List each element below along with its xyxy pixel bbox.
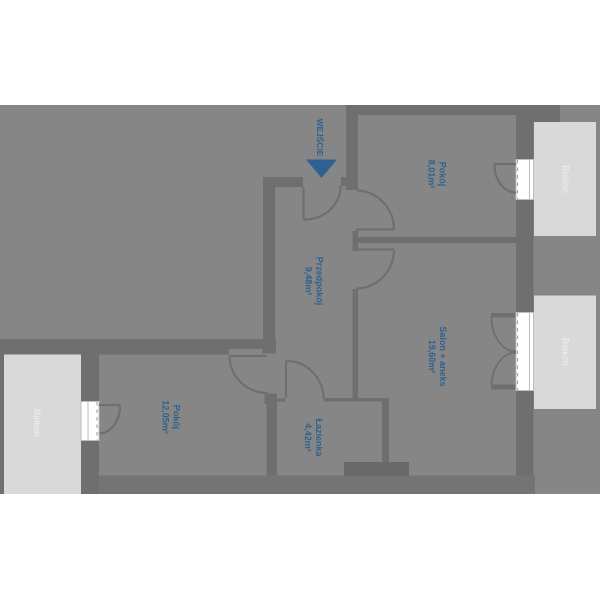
svg-text:Balkon: Balkon (561, 338, 571, 366)
svg-text:12,05m²: 12,05m² (161, 400, 171, 434)
svg-text:Pokój: Pokój (438, 162, 448, 187)
svg-text:19,60m²: 19,60m² (427, 340, 437, 374)
svg-text:WEJŚCIE: WEJŚCIE (315, 119, 326, 157)
svg-text:8,01m²: 8,01m² (427, 160, 437, 189)
svg-text:4,42m²: 4,42m² (303, 423, 313, 452)
svg-text:Balkon: Balkon (32, 409, 42, 437)
svg-text:Przedpokój: Przedpokój (315, 257, 325, 306)
svg-text:Pokój: Pokój (172, 405, 182, 430)
svg-text:Łazienka: Łazienka (314, 418, 324, 457)
svg-text:Salon + aneks: Salon + aneks (438, 326, 448, 386)
svg-text:9,48m²: 9,48m² (304, 267, 314, 296)
svg-text:Balkon: Balkon (561, 165, 571, 193)
